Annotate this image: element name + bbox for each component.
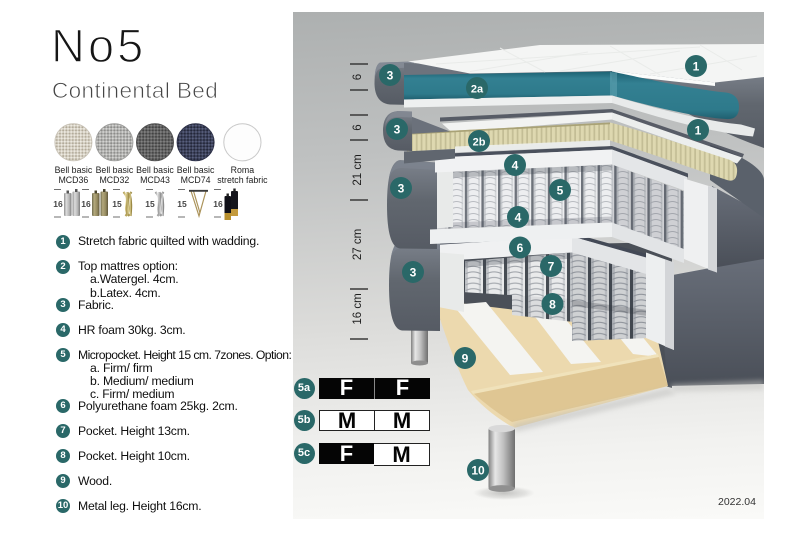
svg-text:6: 6 (352, 124, 364, 130)
svg-text:15: 15 (145, 199, 155, 209)
svg-text:4: 4 (515, 210, 522, 224)
svg-text:9: 9 (462, 351, 469, 365)
svg-text:16 cm: 16 cm (352, 293, 364, 324)
svg-text:7: 7 (548, 259, 555, 273)
svg-text:16: 16 (213, 199, 223, 209)
svg-text:8: 8 (549, 297, 556, 311)
svg-text:3: 3 (387, 68, 394, 82)
svg-text:1: 1 (693, 59, 700, 73)
svg-text:5: 5 (557, 183, 564, 197)
svg-text:3: 3 (394, 122, 401, 136)
svg-text:16: 16 (53, 199, 63, 209)
svg-text:15: 15 (177, 199, 187, 209)
svg-text:10: 10 (471, 463, 485, 477)
svg-text:6: 6 (517, 241, 524, 255)
svg-text:4: 4 (512, 158, 519, 172)
svg-text:1: 1 (695, 123, 702, 137)
svg-text:27 cm: 27 cm (352, 229, 364, 260)
svg-text:15: 15 (112, 199, 122, 209)
svg-text:6: 6 (352, 74, 364, 80)
svg-text:21 cm: 21 cm (352, 154, 364, 185)
svg-text:2b: 2b (473, 136, 486, 148)
svg-text:3: 3 (398, 181, 405, 195)
svg-text:2a: 2a (471, 83, 484, 95)
svg-text:3: 3 (410, 265, 417, 279)
svg-text:16: 16 (81, 199, 91, 209)
